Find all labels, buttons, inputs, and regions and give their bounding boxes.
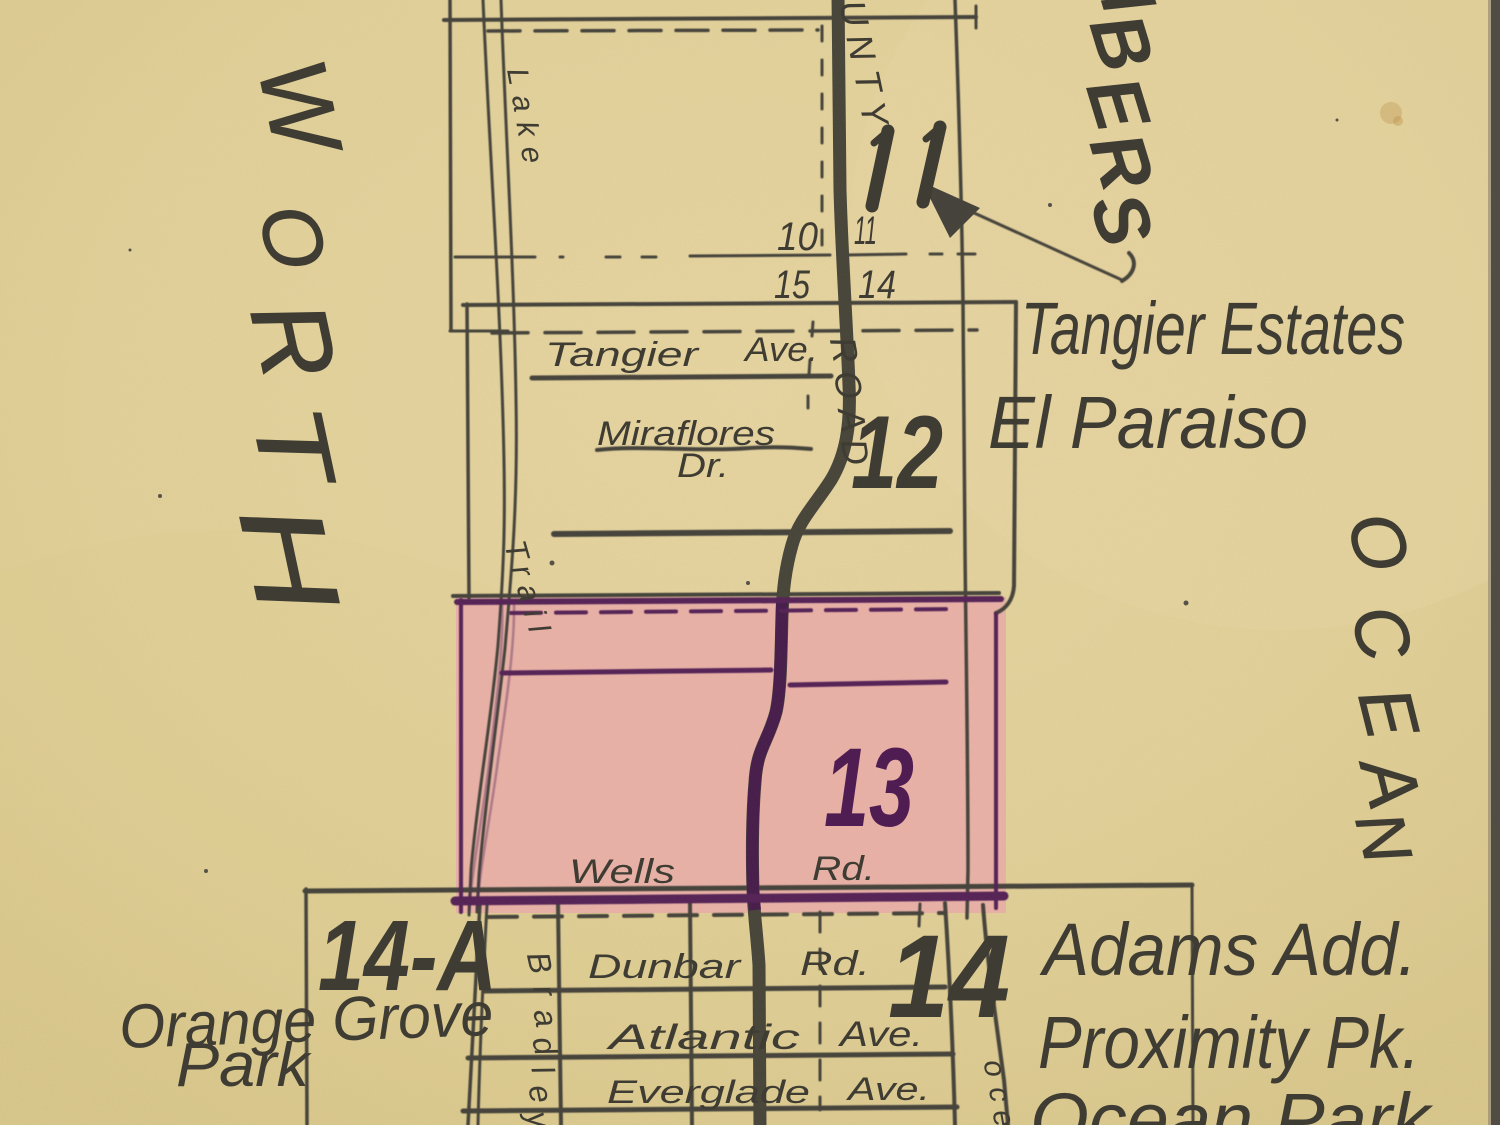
svg-text:Rd.: Rd. [800,945,870,983]
svg-text:Wells: Wells [569,853,675,891]
svg-text:15: 15 [774,263,811,307]
svg-text:Ave.: Ave. [838,1015,923,1054]
svg-text:Proximity Pk.: Proximity Pk. [1038,1001,1420,1084]
svg-text:Tangier: Tangier [545,336,700,374]
svg-text:Everglade: Everglade [607,1074,810,1110]
svg-text:Ave.: Ave. [845,1071,930,1107]
svg-text:11: 11 [854,209,877,253]
svg-text:Tangier Estates: Tangier Estates [1021,287,1405,370]
svg-text:Atlantic: Atlantic [606,1018,801,1057]
svg-text:Ocean Park: Ocean Park [1030,1078,1434,1125]
svg-text:El Paraiso: El Paraiso [988,381,1308,464]
svg-text:Rd.: Rd. [812,850,875,888]
svg-text:Adams Add.: Adams Add. [1039,908,1417,991]
svg-text:Dr.: Dr. [677,447,729,485]
svg-text:Dunbar: Dunbar [588,948,742,986]
svg-text:10: 10 [777,215,818,259]
svg-text:13: 13 [824,725,914,850]
svg-text:Park: Park [176,1031,312,1100]
svg-text:Ave.: Ave. [743,331,818,369]
svg-text:14: 14 [858,263,896,307]
